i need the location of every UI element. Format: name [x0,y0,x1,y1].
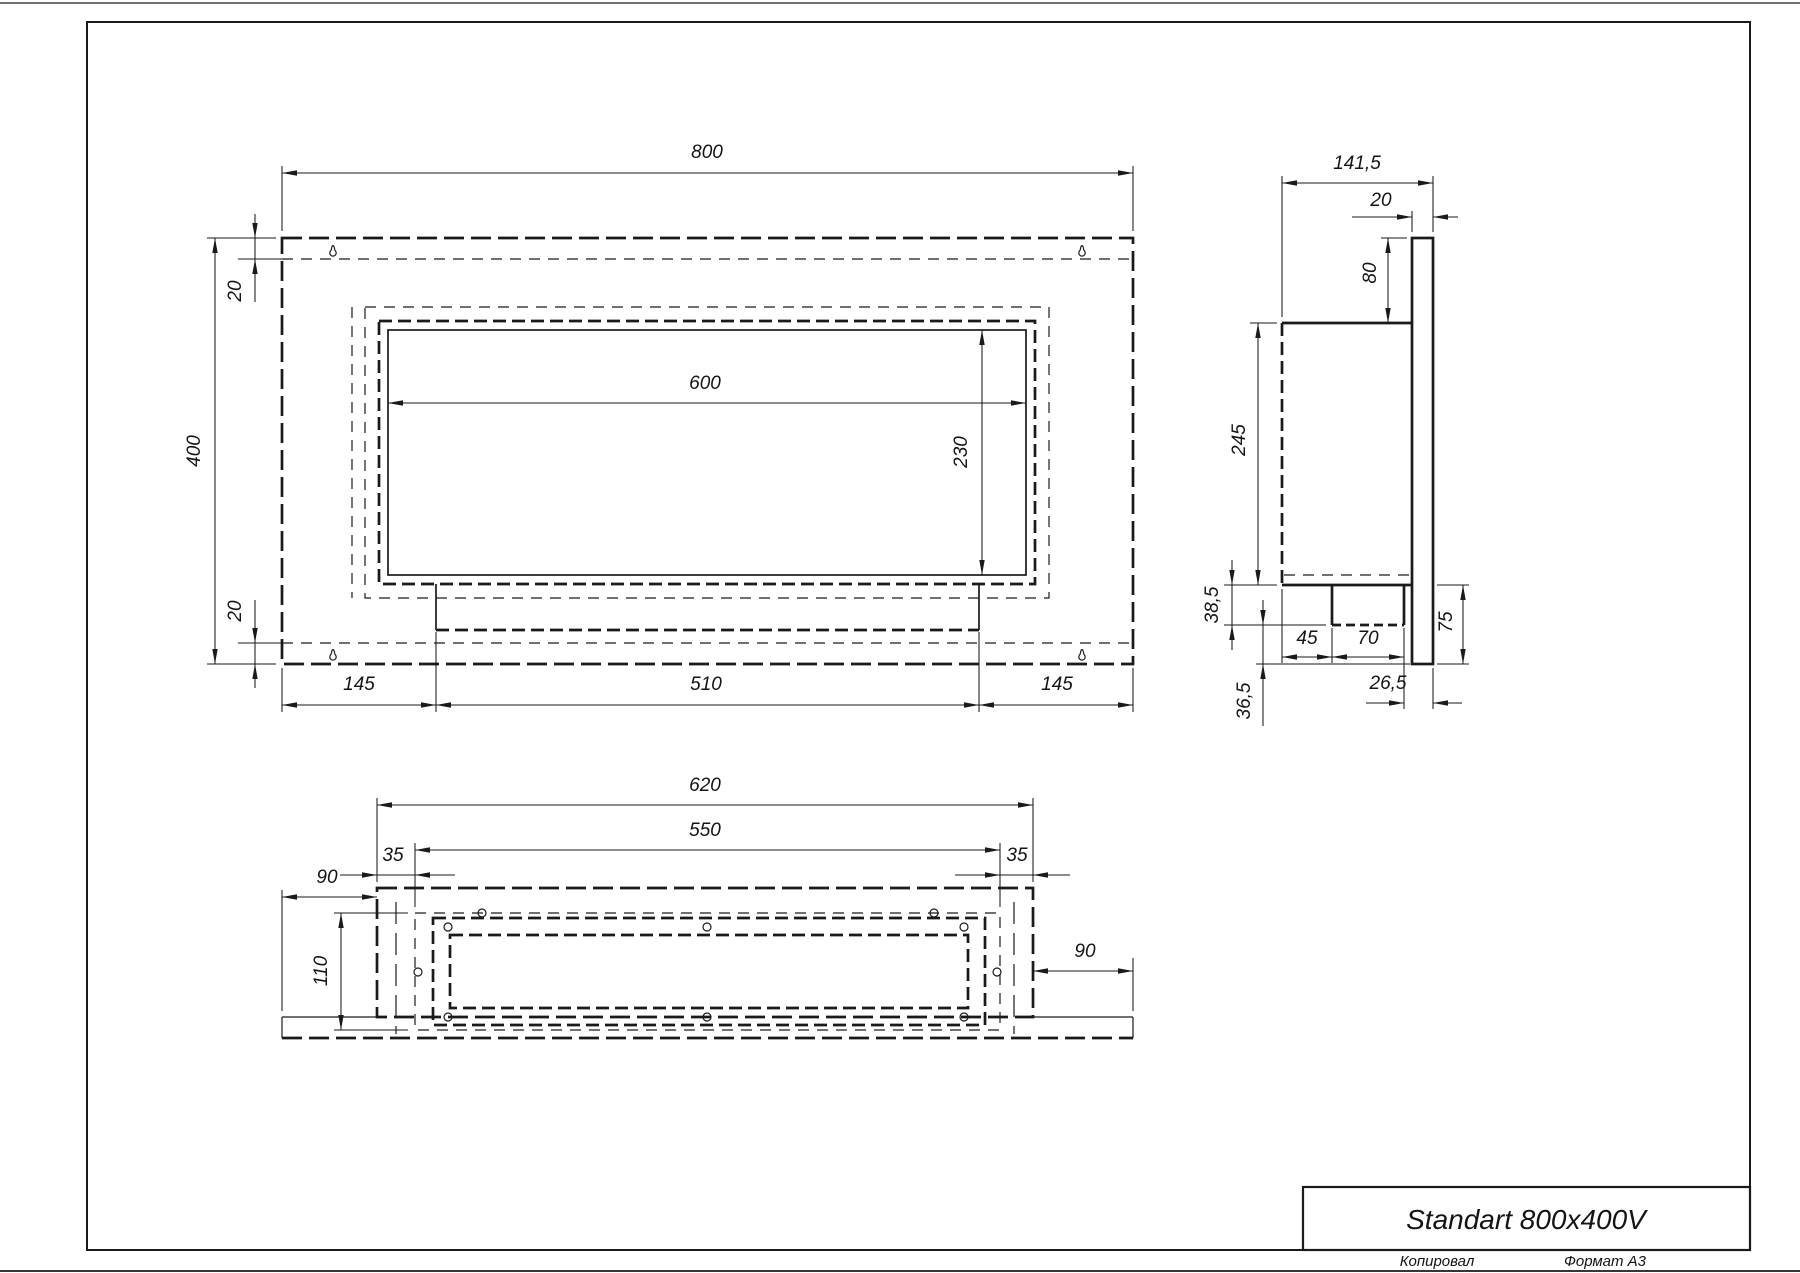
dim-side-body-height: 245 [1229,424,1250,457]
dimension-arrow [1282,654,1297,659]
dimension-arrow [979,330,984,345]
footer-copied-label: Копировал [1400,1253,1475,1270]
dimension-arrow [1282,180,1297,185]
dimension-arrow [1460,649,1465,664]
dim-front-margin-left: 145 [343,674,375,695]
screw-hole [444,923,452,931]
dim-side-burner-width: 70 [1357,628,1379,649]
dimension-arrow [212,649,217,664]
dim-front-opening-width: 600 [689,373,721,394]
footer-format-label: Формат А3 [1564,1253,1647,1270]
sheet-frame [0,3,1800,1271]
keyhole-mount-icon [330,246,336,257]
dimension-arrow [1255,570,1260,585]
dimension-arrow [1118,170,1133,175]
keyhole-mount-icon [330,650,336,661]
dimension-arrow [282,170,297,175]
dimension-arrow [1460,585,1465,600]
body-outline-plan [377,888,1033,1017]
dimension-arrow [1260,610,1265,625]
dim-bottom-margin-left: 35 [382,845,404,866]
dimension-arrow [1260,664,1265,679]
dimension-arrow [338,1015,343,1030]
dimension-arrow [1332,654,1347,659]
dimension-arrow [252,628,257,643]
dim-side-depth: 141,5 [1333,153,1381,174]
dimension-arrow [1389,700,1404,705]
dimension-arrow [1033,872,1048,877]
dimension-arrow [252,259,257,274]
dim-side-top-overhang: 80 [1360,262,1381,284]
dim-front-tray-width: 510 [690,674,722,695]
tray-inner-wall [450,935,968,1008]
title-text: Standart 800x400V [1406,1204,1648,1235]
dimension-arrow [979,702,994,707]
dimension-arrow [252,223,257,238]
dimension-arrow [212,238,217,253]
dimension-arrow [421,702,436,707]
dimension-arrow [1118,702,1133,707]
dimension-arrow [436,702,451,707]
dim-side-front-gap: 26,5 [1369,673,1407,694]
dim-side-bottom-gap: 36,5 [1234,682,1255,719]
title-block: Standart 800x400VКопировалФормат А3 [1303,1187,1750,1270]
technical-drawing-canvas: 8004002020600230145510145141,5208024538,… [0,0,1800,1273]
dim-bottom-body-width: 620 [689,775,721,796]
dim-front-margin-right: 145 [1041,674,1073,695]
dimension-arrow [1011,400,1026,405]
dimension-arrow [1033,968,1048,973]
panel-side-profile [1412,238,1433,664]
keyhole-mount-icon [1079,650,1085,661]
dimension-arrow [362,872,377,877]
dimension-arrow [1397,214,1412,219]
dim-side-bottom-overhang: 75 [1436,611,1457,633]
dimension-arrow [1385,238,1390,253]
drawing-frame [87,22,1750,1250]
dimension-arrow [1229,570,1234,585]
dimension-arrow [282,702,297,707]
dim-front-opening-height: 230 [951,436,972,469]
dimension-arrow [388,400,403,405]
dim-front-top-inset: 20 [225,280,246,303]
screw-hole [414,968,422,976]
dimension-arrow [1418,180,1433,185]
dimension-arrow [1229,625,1234,640]
opening-outer-hidden [365,307,1049,598]
dimension-arrow [1118,968,1133,973]
dimension-arrow [1018,802,1033,807]
dimension-arrow [985,847,1000,852]
dim-front-height: 400 [184,435,205,467]
drawing-sheet: 8004002020600230145510145141,5208024538,… [0,0,1800,1273]
panel-outline [282,238,1133,664]
dim-front-width: 800 [691,142,723,163]
dim-front-bottom-inset: 20 [225,600,246,623]
dim-bottom-tray-length: 550 [689,820,721,841]
dim-bottom-margin-right: 35 [1006,845,1028,866]
keyhole-mount-icon [1079,246,1085,257]
dim-side-burner-drop: 38,5 [1202,586,1223,623]
screw-hole [703,923,711,931]
dimension-arrow [362,894,377,899]
opening-visible [388,330,1026,575]
dim-bottom-opening-depth: 110 [311,955,332,986]
opening-mid-hidden [379,321,1035,584]
dimension-arrow [415,872,430,877]
dimension-arrow [985,872,1000,877]
dimension-arrow [377,802,392,807]
dimension-arrow [1255,323,1260,338]
dimension-arrow [964,702,979,707]
screw-hole [993,968,1001,976]
dim-bottom-offset-left: 90 [316,867,338,888]
dimension-arrow [1389,654,1404,659]
dimension-arrow [1433,700,1448,705]
bottom-view: 62055035359090110 [282,775,1133,1038]
dimension-arrow [1317,654,1332,659]
dimension-arrow [1433,214,1448,219]
front-view: 8004002020600230145510145 [184,142,1133,712]
dimension-arrow [282,894,297,899]
dim-bottom-offset-right: 90 [1074,941,1096,962]
dimension-arrow [338,913,343,928]
dimension-arrow [415,847,430,852]
dim-side-burner-offset: 45 [1296,628,1318,649]
screw-hole [960,923,968,931]
dimension-arrow [1385,308,1390,323]
dimension-arrow [252,664,257,679]
dimension-arrow [979,560,984,575]
side-view: 141,5208024538,545707526,536,5 [1202,153,1469,726]
dim-side-panel-thickness: 20 [1369,190,1392,211]
